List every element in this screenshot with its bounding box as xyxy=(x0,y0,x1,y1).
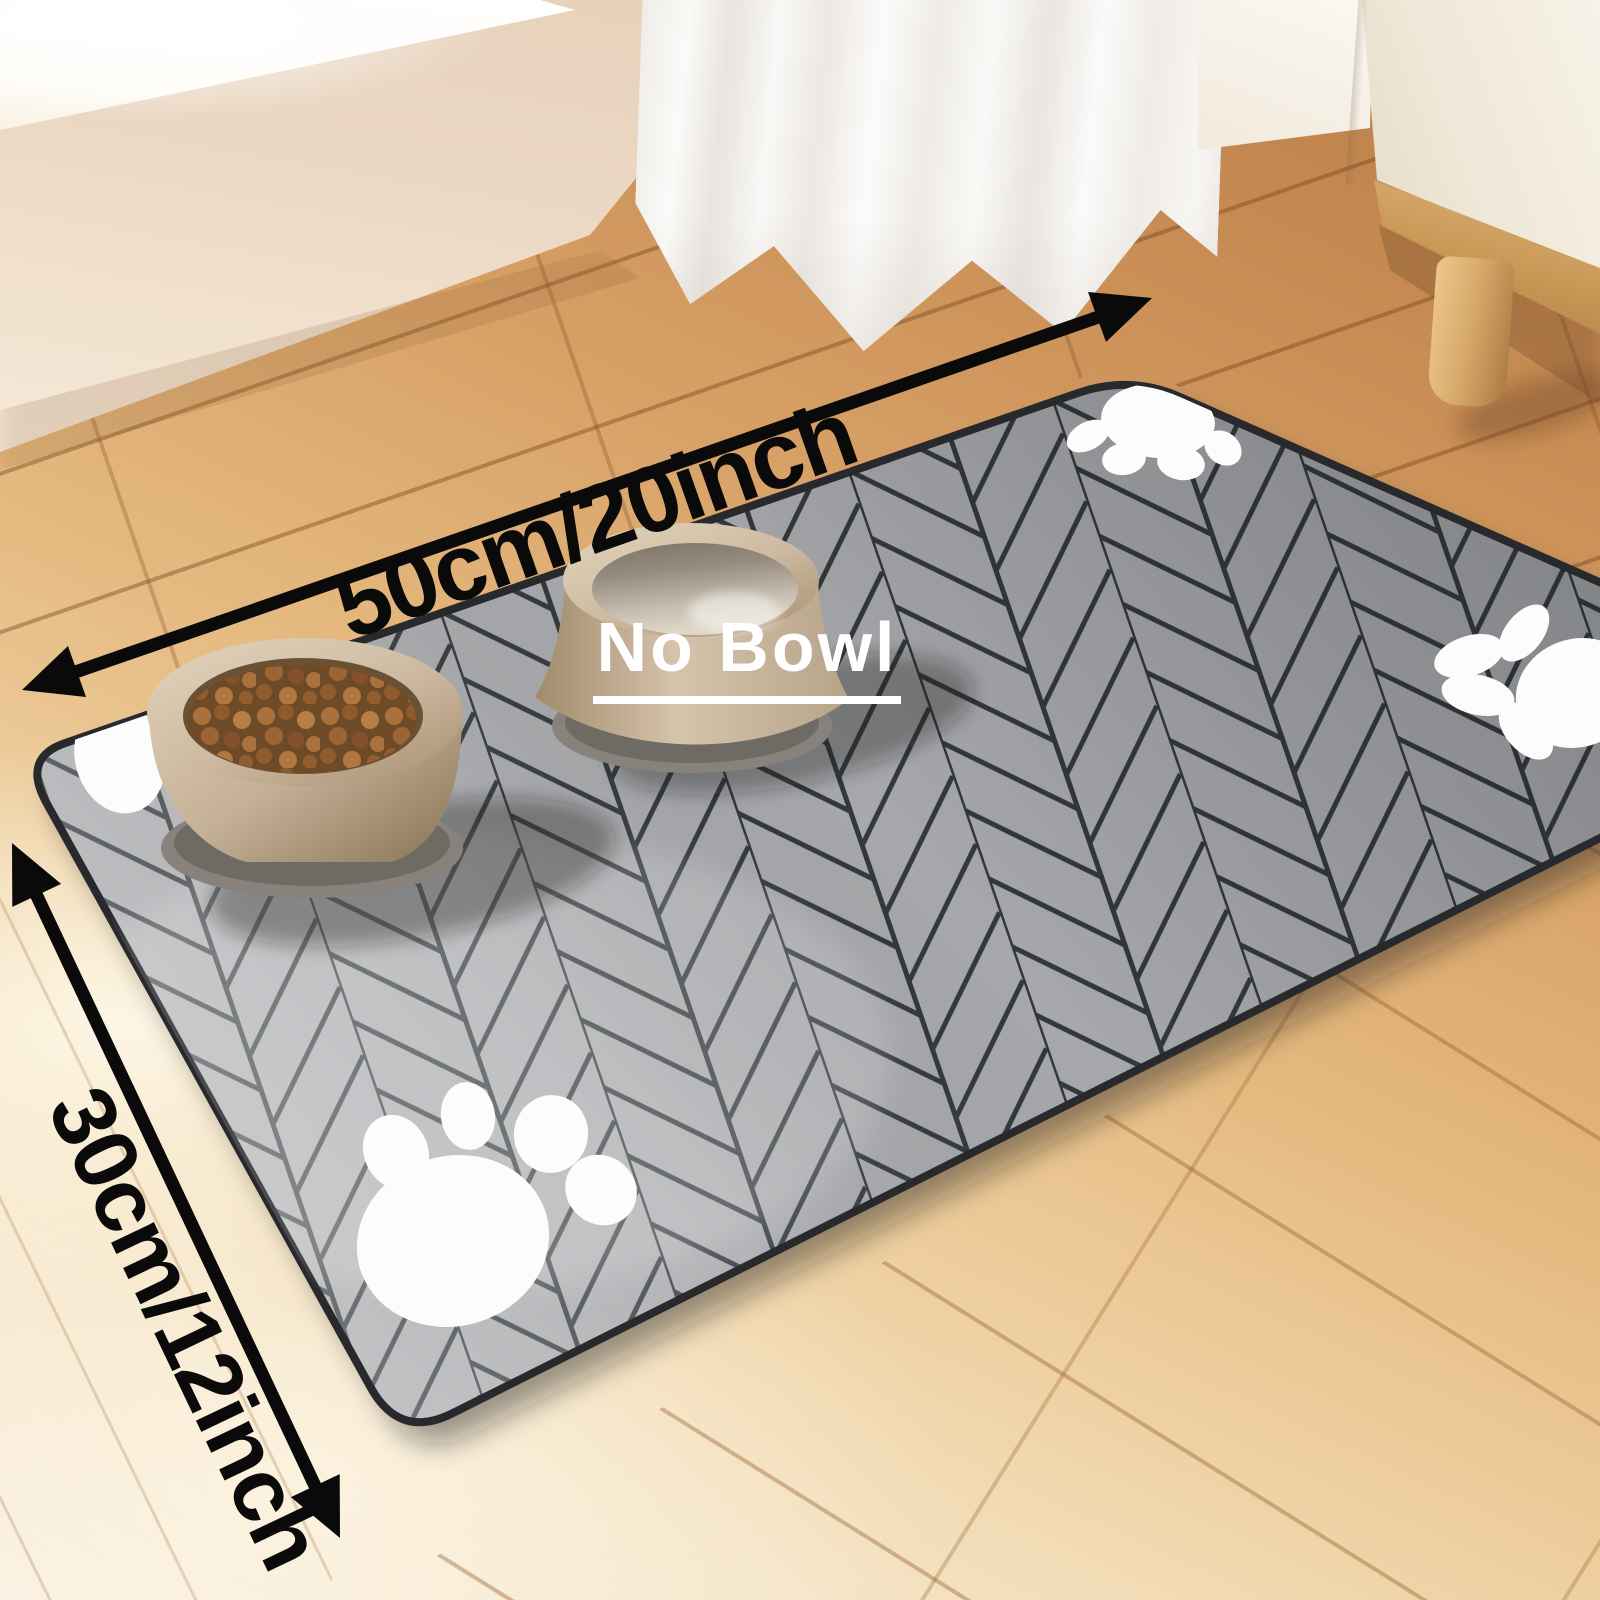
no-bowl-label-text: No Bowl xyxy=(593,612,902,704)
product-image: 50cm/20inch 30cm/12inch No Bowl xyxy=(0,0,1600,1600)
no-bowl-label: No Bowl xyxy=(540,612,954,704)
